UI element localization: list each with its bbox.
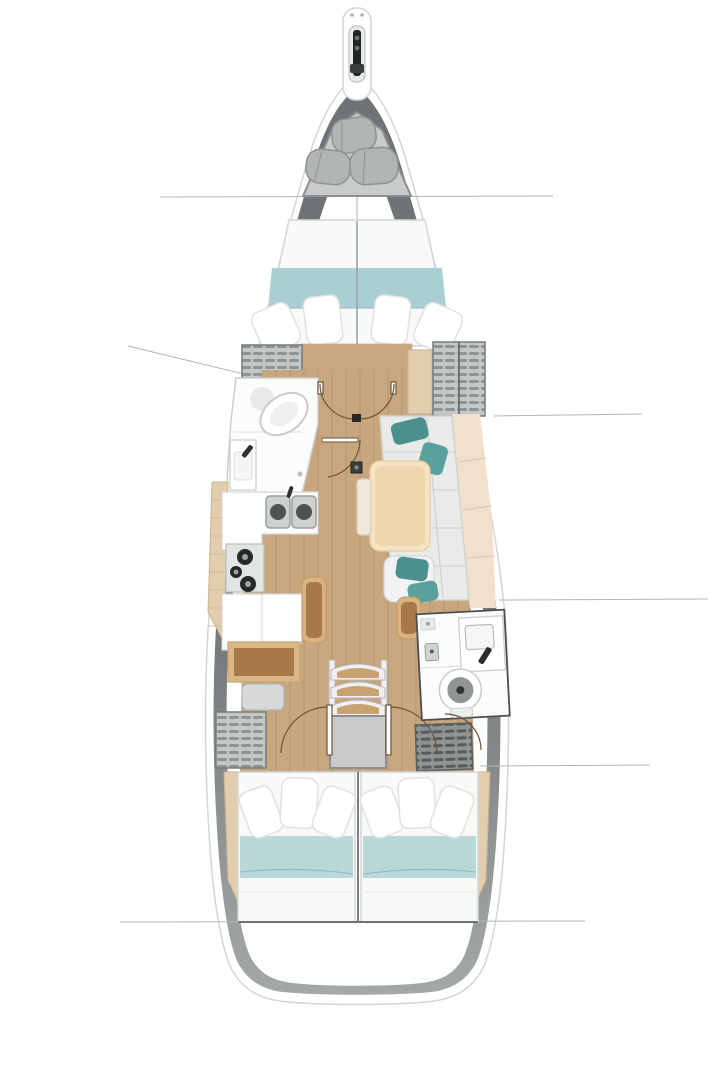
aft-cabins bbox=[224, 772, 490, 922]
floorplan-canvas bbox=[0, 0, 713, 1080]
stbd-shelf-strip bbox=[408, 350, 432, 414]
stbd-aft-locker bbox=[415, 723, 473, 771]
companionway bbox=[329, 660, 387, 768]
section-line-stbd-mid bbox=[499, 599, 708, 600]
chart-seat bbox=[242, 684, 284, 710]
section-line-stbd-fwd bbox=[494, 414, 642, 416]
companionway-landing bbox=[330, 716, 386, 768]
companionway-steps bbox=[331, 664, 385, 716]
port-aft-locker bbox=[216, 712, 266, 768]
boat-floorplan bbox=[0, 0, 713, 1080]
saloon-bench bbox=[357, 479, 371, 535]
mast-step-icon bbox=[351, 462, 362, 473]
head-door-leaf bbox=[322, 438, 358, 442]
door-stop bbox=[352, 414, 361, 422]
saloon-ottoman-port bbox=[302, 577, 326, 643]
sail-locker bbox=[303, 112, 411, 196]
galley-stove-icon bbox=[226, 544, 264, 592]
sail-bag bbox=[304, 148, 351, 186]
aft-head bbox=[416, 610, 509, 720]
sail-bag bbox=[349, 146, 399, 185]
bowsprit-anchor-roller bbox=[343, 8, 371, 100]
